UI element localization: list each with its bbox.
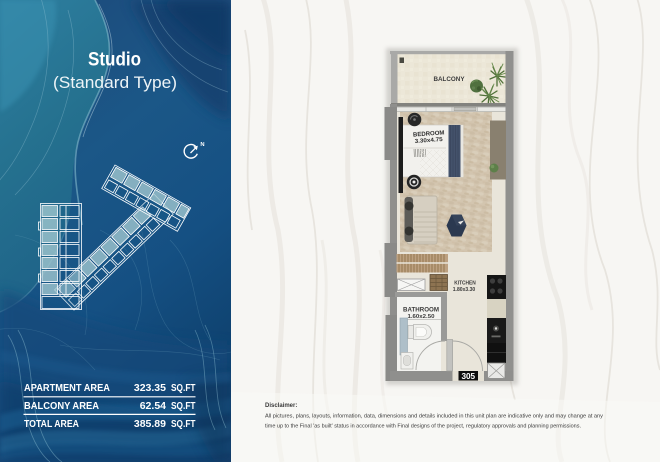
svg-text:1.80x3.30: 1.80x3.30: [453, 287, 476, 293]
svg-text:BALCONY AREA: BALCONY AREA: [24, 400, 99, 412]
svg-text:SQ.FT: SQ.FT: [171, 418, 196, 430]
svg-text:385.89: 385.89: [134, 418, 166, 430]
svg-text:KITCHEN: KITCHEN: [454, 281, 476, 287]
svg-text:(Standard Type): (Standard Type): [53, 73, 177, 92]
svg-text:SQ.FT: SQ.FT: [171, 382, 196, 394]
svg-text:1.60x2.50: 1.60x2.50: [408, 314, 435, 320]
svg-text:TOTAL AREA: TOTAL AREA: [24, 418, 79, 430]
svg-text:Disclaimer:: Disclaimer:: [265, 403, 297, 409]
svg-text:62.54: 62.54: [140, 400, 166, 412]
svg-text:APARTMENT AREA: APARTMENT AREA: [24, 382, 110, 394]
svg-text:SQ.FT: SQ.FT: [171, 400, 196, 412]
svg-text:305: 305: [461, 372, 475, 381]
svg-text:323.35: 323.35: [134, 382, 166, 394]
svg-text:time up to the Final 'as built: time up to the Final 'as built' status i…: [265, 424, 581, 430]
svg-text:All pictures, plans, layouts,: All pictures, plans, layouts, informatio…: [265, 414, 603, 420]
svg-text:BATHROOM: BATHROOM: [403, 308, 439, 314]
svg-text:Studio: Studio: [88, 50, 141, 71]
svg-text:N: N: [200, 142, 204, 148]
svg-text:BALCONY: BALCONY: [434, 76, 465, 83]
